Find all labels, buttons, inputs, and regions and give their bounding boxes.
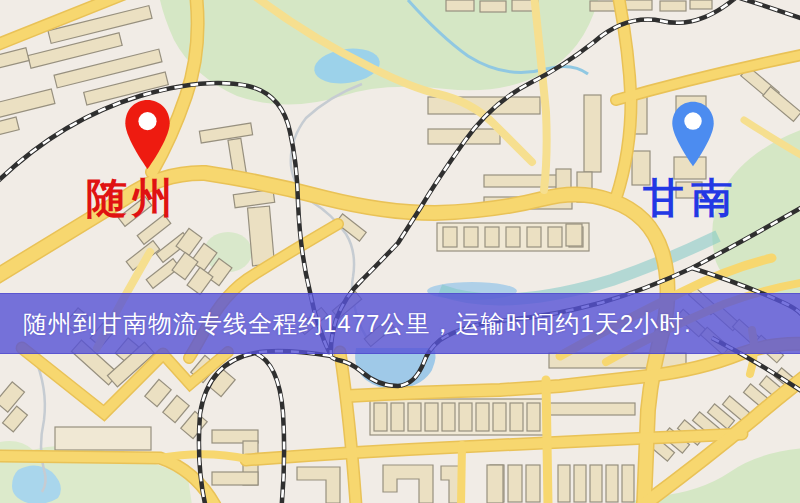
map-canvas[interactable] [0,0,800,503]
blue-map-pin-icon [672,102,713,166]
destination-pin[interactable] [667,99,719,169]
route-banner-text: 随州到甘南物流专线全程约1477公里，运输时间约1天2小时. [0,308,692,340]
route-banner: 随州到甘南物流专线全程约1477公里，运输时间约1天2小时. [0,293,800,354]
origin-pin[interactable] [120,97,175,172]
map-screenshot: 随州 甘南 随州到甘南物流专线全程约1477公里，运输时间约1天2小时. [0,0,800,503]
destination-label: 甘南 [643,178,739,219]
pin-hole [138,112,156,130]
red-map-pin-icon [125,100,169,169]
origin-label: 随州 [86,178,178,219]
pin-hole [684,112,702,129]
